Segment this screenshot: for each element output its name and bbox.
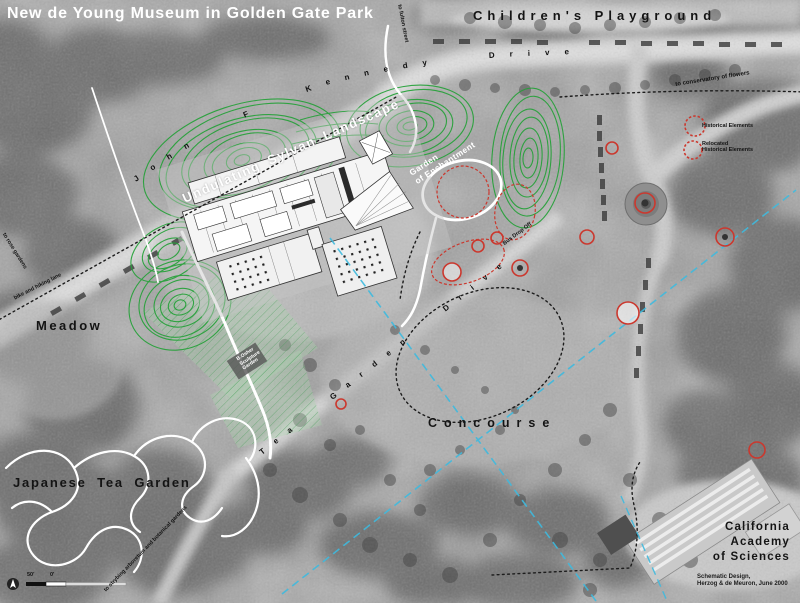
legend-historical-elements: Historical Elements (702, 123, 753, 129)
legend-relocated-historical: Relocated Historical Elements (702, 141, 753, 153)
map-title: New de Young Museum in Golden Gate Park (7, 5, 374, 23)
credits: Schematic Design, Herzog & de Meuron, Ju… (697, 574, 788, 588)
map-graphics: John F Kennedy Drive Tea Garden Drive (0, 0, 800, 603)
area-label-childrens-playground: Children's Playground (473, 8, 716, 23)
north-arrow (7, 578, 19, 590)
area-label-california-academy: California Academy of Sciences (690, 520, 790, 565)
site-plan-map: John F Kennedy Drive Tea Garden Drive Ne… (0, 0, 800, 603)
scale-label-0: 0' (50, 572, 54, 578)
scale-label-50: 50' (27, 572, 34, 578)
area-label-concourse: Concourse (428, 416, 556, 430)
area-label-japanese-tea-garden: Japanese Tea Garden (13, 475, 191, 490)
area-label-meadow: Meadow (36, 318, 102, 333)
